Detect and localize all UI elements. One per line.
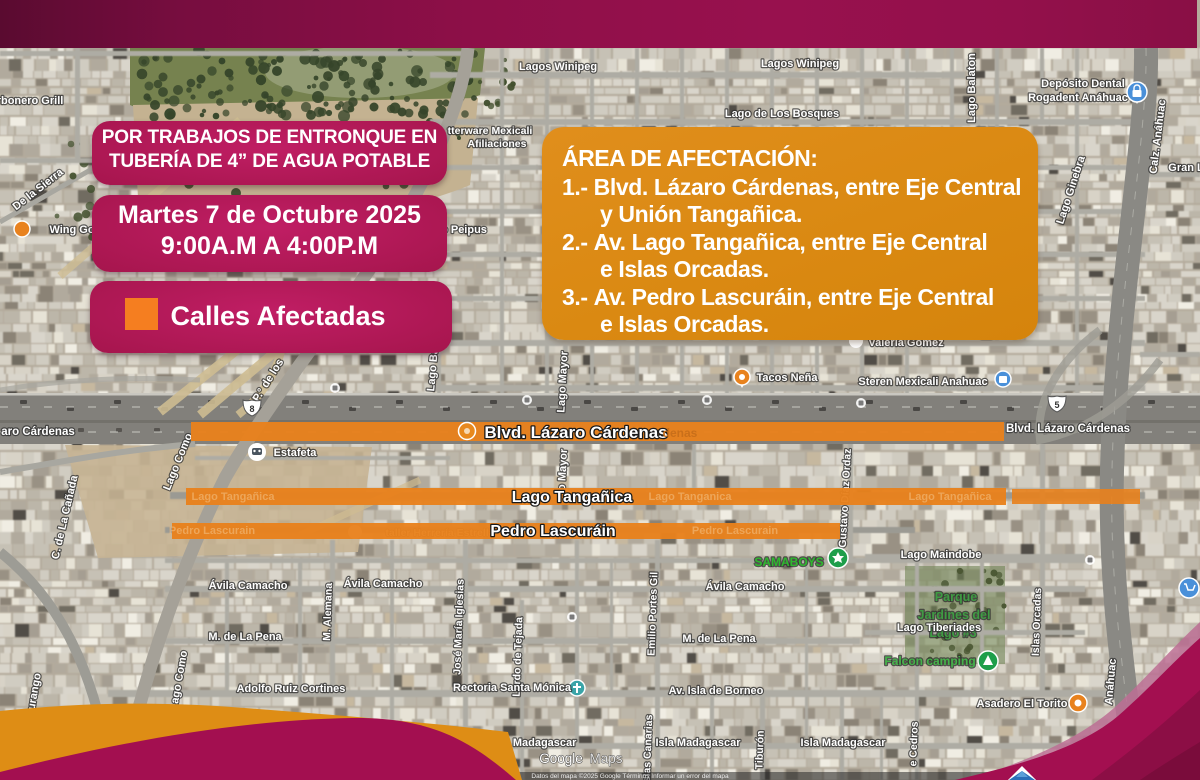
svg-text:M. Alemana: M. Alemana bbox=[321, 583, 335, 642]
svg-text:Islas Orcadas: Islas Orcadas bbox=[1030, 587, 1044, 656]
svg-text:Maps: Maps bbox=[589, 751, 622, 766]
svg-text:Tacos Neña: Tacos Neña bbox=[757, 372, 819, 384]
svg-text:M. de La Pena: M. de La Pena bbox=[682, 633, 756, 645]
svg-text:Ávila Camacho: Ávila Camacho bbox=[706, 580, 785, 593]
svg-text:Pedro Lascurain: Pedro Lascurain bbox=[169, 525, 255, 537]
svg-text:Isla Madagascar: Isla Madagascar bbox=[656, 737, 742, 749]
svg-text:Adolfo Ruiz Cortines: Adolfo Ruiz Cortines bbox=[237, 683, 346, 695]
svg-text:Ávila Camacho: Ávila Camacho bbox=[344, 577, 423, 590]
svg-text:Lago Tangañica: Lago Tangañica bbox=[512, 489, 633, 506]
svg-text:tterware Mexicali: tterware Mexicali bbox=[448, 125, 533, 137]
svg-text:o Peipus: o Peipus bbox=[441, 224, 487, 236]
svg-text:Lago Balaton: Lago Balaton bbox=[966, 53, 978, 123]
svg-text:denas: denas bbox=[663, 426, 698, 440]
svg-text:Lagos Winipeg: Lagos Winipeg bbox=[519, 61, 597, 73]
svg-text:Asadero El Torito: Asadero El Torito bbox=[977, 698, 1068, 710]
svg-text:Pedro Lascurain: Pedro Lascurain bbox=[692, 525, 778, 537]
svg-text:Lago de Los Bosques: Lago de Los Bosques bbox=[725, 108, 839, 120]
svg-text:8: 8 bbox=[249, 404, 254, 414]
svg-text:o Mayor: o Mayor bbox=[556, 448, 570, 491]
svg-text:Lago Maindobe: Lago Maindobe bbox=[901, 549, 982, 561]
svg-text:Jardines del: Jardines del bbox=[918, 608, 991, 622]
svg-text:Isla Madagascar: Isla Madagascar bbox=[801, 737, 887, 749]
svg-text:M. de La Pena: M. de La Pena bbox=[208, 631, 282, 643]
svg-text:Rogadent Anáhuac: Rogadent Anáhuac bbox=[1028, 92, 1128, 104]
svg-text:Blvd. Lázaro Cárdenas: Blvd. Lázaro Cárdenas bbox=[484, 423, 667, 442]
svg-text:Datos del mapa ©2025 Google: Datos del mapa ©2025 Google Términos Inf… bbox=[531, 772, 729, 780]
svg-text:Ávila Camacho: Ávila Camacho bbox=[209, 579, 288, 592]
svg-text:Steren Mexicali Anahuac: Steren Mexicali Anahuac bbox=[858, 376, 987, 388]
svg-text:Tiburón: Tiburón bbox=[753, 730, 766, 769]
svg-text:Lagos Winipeg: Lagos Winipeg bbox=[761, 58, 839, 70]
svg-text:Gran L: Gran L bbox=[1168, 162, 1200, 174]
svg-text:Islas Canarias: Islas Canarias bbox=[641, 714, 655, 780]
svg-text:Blvd. Lázaro Cárdenas: Blvd. Lázaro Cárdenas bbox=[1006, 423, 1130, 435]
svg-text:Google: Google bbox=[539, 751, 583, 766]
svg-text:Pedro Lascuráin: Pedro Lascuráin bbox=[490, 523, 615, 540]
svg-text:Lago Tanganica: Lago Tanganica bbox=[649, 491, 733, 503]
svg-text:Estafeta: Estafeta bbox=[274, 447, 318, 459]
svg-text:Afiliaciones: Afiliaciones bbox=[468, 138, 527, 150]
svg-text:Falcon camping: Falcon camping bbox=[884, 654, 975, 668]
svg-text:Parque: Parque bbox=[935, 590, 977, 604]
svg-text:rbonero Grill: rbonero Grill bbox=[0, 95, 63, 107]
svg-text:Lago Tangañica: Lago Tangañica bbox=[909, 491, 993, 503]
svg-text:5: 5 bbox=[1054, 400, 1059, 410]
svg-text:Rectoria Santa Mónica: Rectoria Santa Mónica bbox=[453, 682, 572, 694]
svg-text:Wing Go: Wing Go bbox=[49, 224, 94, 236]
svg-text:Lago Tangañica: Lago Tangañica bbox=[192, 491, 276, 503]
svg-text:Av. Isla de Borneo: Av. Isla de Borneo bbox=[669, 685, 764, 697]
svg-text:Lago Tiberiades: Lago Tiberiades bbox=[897, 622, 981, 634]
svg-text:Depósito Dental: Depósito Dental bbox=[1041, 78, 1125, 90]
svg-text:e Cedros: e Cedros bbox=[907, 721, 921, 766]
svg-text:aro Cárdenas: aro Cárdenas bbox=[1, 426, 75, 438]
svg-text:SAMABOYS: SAMABOYS bbox=[754, 555, 823, 569]
